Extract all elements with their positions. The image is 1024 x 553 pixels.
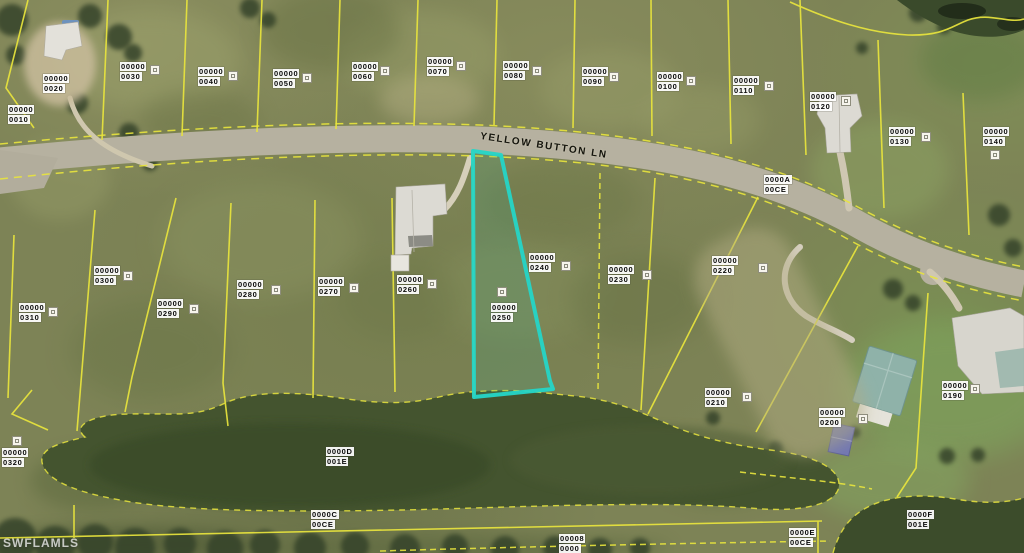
parcel-label-0090: 000000090 bbox=[582, 67, 608, 87]
parcel-label-0100: 000000100 bbox=[657, 72, 683, 92]
aerial-parcel-map: 0000000100000000200000000300000000400000… bbox=[0, 0, 1024, 553]
lot-marker bbox=[764, 81, 774, 91]
parcel-label-0130: 000000130 bbox=[889, 127, 915, 147]
lot-marker bbox=[380, 66, 390, 76]
parcel-label-0110: 000000110 bbox=[733, 76, 759, 96]
parcel-label-0060: 000000060 bbox=[352, 62, 378, 82]
parcel-label-0210: 000000210 bbox=[705, 388, 731, 408]
parcel-label-0010: 000000010 bbox=[8, 105, 34, 125]
parcel-label-0270: 000000270 bbox=[318, 277, 344, 297]
parcel-label-0260: 000000260 bbox=[397, 275, 423, 295]
parcel-label-0240: 000000240 bbox=[529, 253, 555, 273]
lot-marker bbox=[302, 73, 312, 83]
parcel-label-001E: 0000F001E bbox=[907, 510, 934, 530]
lot-marker bbox=[123, 271, 133, 281]
lot-marker bbox=[12, 436, 22, 446]
mls-watermark: SWFLAMLS bbox=[3, 536, 79, 550]
lot-marker bbox=[271, 285, 281, 295]
lot-marker bbox=[642, 270, 652, 280]
lot-marker bbox=[532, 66, 542, 76]
parcel-label-0000: 000080000 bbox=[559, 534, 585, 553]
lot-marker bbox=[561, 261, 571, 271]
parcel-label-0280: 000000280 bbox=[237, 280, 263, 300]
lot-marker bbox=[189, 304, 199, 314]
parcel-label-0030: 000000030 bbox=[120, 62, 146, 82]
parcel-label-0230: 000000230 bbox=[608, 265, 634, 285]
lot-marker bbox=[497, 287, 507, 297]
lot-marker bbox=[990, 150, 1000, 160]
lot-marker bbox=[921, 132, 931, 142]
parcel-label-00CE: 0000E00CE bbox=[789, 528, 816, 548]
lot-marker bbox=[48, 307, 58, 317]
parcel-label-0200: 000000200 bbox=[819, 408, 845, 428]
parcel-label-0310: 000000310 bbox=[19, 303, 45, 323]
parcel-label-0250: 000000250 bbox=[491, 303, 517, 323]
lot-marker bbox=[686, 76, 696, 86]
lot-marker bbox=[228, 71, 238, 81]
lot-marker bbox=[456, 61, 466, 71]
parcel-label-00CE: 0000A00CE bbox=[764, 175, 792, 195]
parcel-labels: 0000000100000000200000000300000000400000… bbox=[0, 0, 1024, 553]
lot-marker bbox=[758, 263, 768, 273]
lot-marker bbox=[427, 279, 437, 289]
parcel-label-00CE: 0000C00CE bbox=[311, 510, 339, 530]
parcel-label-0190: 000000190 bbox=[942, 381, 968, 401]
lot-marker bbox=[150, 65, 160, 75]
parcel-label-0220: 000000220 bbox=[712, 256, 738, 276]
lot-marker bbox=[609, 72, 619, 82]
lot-marker bbox=[349, 283, 359, 293]
lot-marker bbox=[970, 384, 980, 394]
parcel-label-0070: 000000070 bbox=[427, 57, 453, 77]
parcel-label-001E: 0000D001E bbox=[326, 447, 354, 467]
parcel-label-0080: 000000080 bbox=[503, 61, 529, 81]
parcel-label-0300: 000000300 bbox=[94, 266, 120, 286]
parcel-label-0290: 000000290 bbox=[157, 299, 183, 319]
parcel-label-0140: 000000140 bbox=[983, 127, 1009, 147]
parcel-label-0020: 000000020 bbox=[43, 74, 69, 94]
lot-marker bbox=[858, 414, 868, 424]
parcel-label-0050: 000000050 bbox=[273, 69, 299, 89]
parcel-label-0040: 000000040 bbox=[198, 67, 224, 87]
parcel-label-0120: 000000120 bbox=[810, 92, 836, 112]
lot-marker bbox=[841, 96, 851, 106]
parcel-label-0320: 000000320 bbox=[2, 448, 28, 468]
lot-marker bbox=[742, 392, 752, 402]
